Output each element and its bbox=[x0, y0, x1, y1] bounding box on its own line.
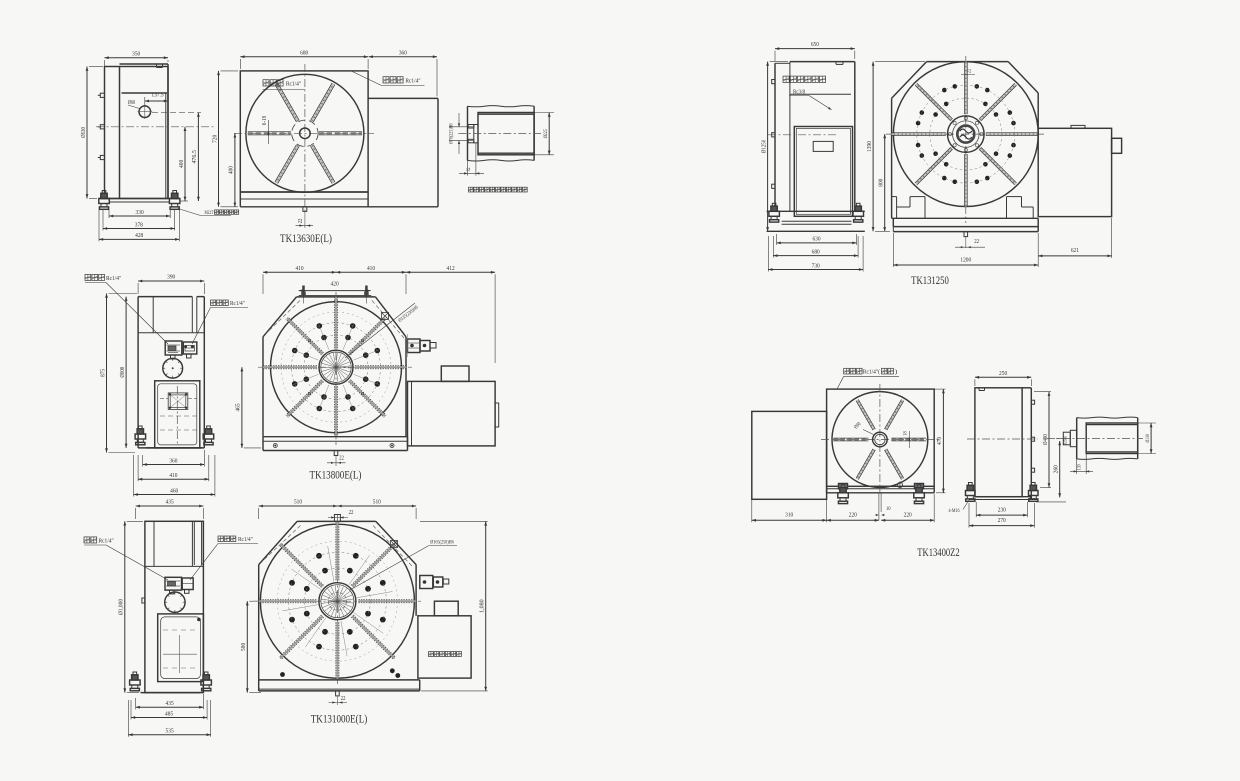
svg-text:680: 680 bbox=[300, 50, 309, 57]
svg-text:435: 435 bbox=[166, 499, 175, 506]
svg-text:Ø600: Ø600 bbox=[119, 366, 126, 377]
svg-text:Ø400: Ø400 bbox=[1042, 434, 1049, 445]
svg-text:18: 18 bbox=[903, 431, 909, 436]
svg-text:410: 410 bbox=[295, 265, 304, 272]
svg-text:460: 460 bbox=[170, 487, 179, 494]
svg-text:470: 470 bbox=[936, 436, 943, 445]
svg-text:M22T: M22T bbox=[205, 210, 214, 216]
svg-text:730: 730 bbox=[812, 262, 821, 269]
svg-text:Rc1/4″: Rc1/4″ bbox=[286, 81, 302, 88]
svg-text:6-18: 6-18 bbox=[262, 116, 268, 126]
svg-text:22: 22 bbox=[339, 455, 344, 461]
svg-text:510: 510 bbox=[373, 499, 382, 506]
svg-text:220: 220 bbox=[904, 512, 913, 519]
svg-text:): ) bbox=[895, 369, 898, 376]
svg-text:250: 250 bbox=[999, 370, 1008, 377]
svg-text:680: 680 bbox=[812, 248, 821, 255]
svg-text:Ø225: Ø225 bbox=[543, 129, 549, 138]
svg-text:270: 270 bbox=[998, 517, 1007, 524]
svg-text:137.5: 137.5 bbox=[151, 93, 163, 99]
svg-text:428: 428 bbox=[135, 232, 144, 239]
svg-text:310: 310 bbox=[785, 512, 794, 519]
svg-text:Ø1250: Ø1250 bbox=[760, 139, 767, 153]
svg-text:TK13400Z2: TK13400Z2 bbox=[917, 547, 960, 559]
svg-text:Ø130: Ø130 bbox=[1145, 434, 1151, 443]
svg-text:412: 412 bbox=[447, 265, 455, 272]
svg-text:360: 360 bbox=[399, 50, 408, 57]
svg-text:330: 330 bbox=[136, 209, 145, 216]
svg-text:485: 485 bbox=[165, 710, 174, 717]
svg-text:TK13630E(L): TK13630E(L) bbox=[280, 233, 332, 245]
svg-text:Ø70(225)H6: Ø70(225)H6 bbox=[450, 123, 455, 144]
svg-text:Rc1/4″: Rc1/4″ bbox=[99, 538, 115, 545]
svg-text:130: 130 bbox=[1077, 464, 1082, 470]
svg-text:800: 800 bbox=[878, 178, 885, 187]
svg-text:875: 875 bbox=[99, 368, 106, 377]
svg-text:Ø630: Ø630 bbox=[80, 127, 87, 138]
svg-text:220: 220 bbox=[849, 512, 858, 519]
svg-text:535: 535 bbox=[166, 728, 175, 735]
svg-text:360: 360 bbox=[169, 457, 178, 464]
svg-text:22: 22 bbox=[341, 696, 346, 702]
svg-text:410: 410 bbox=[169, 472, 178, 479]
svg-text:400: 400 bbox=[228, 165, 235, 174]
svg-text:410: 410 bbox=[367, 265, 376, 272]
svg-text:390: 390 bbox=[167, 274, 176, 281]
svg-text:1390: 1390 bbox=[866, 141, 873, 152]
svg-text:621: 621 bbox=[1071, 247, 1079, 254]
svg-text:Rc1/4″: Rc1/4″ bbox=[230, 301, 245, 307]
svg-text:Ø1,000: Ø1,000 bbox=[118, 598, 125, 615]
svg-text:1200: 1200 bbox=[960, 256, 971, 263]
svg-text:Rc1/4″(: Rc1/4″( bbox=[863, 369, 880, 376]
svg-text:Rc1/4″: Rc1/4″ bbox=[106, 275, 122, 282]
svg-text:4-M16: 4-M16 bbox=[948, 508, 959, 514]
svg-text:Ø60: Ø60 bbox=[128, 100, 135, 106]
svg-text:Rc3/8: Rc3/8 bbox=[793, 90, 805, 96]
svg-text:22: 22 bbox=[349, 510, 354, 516]
svg-text:10: 10 bbox=[886, 506, 891, 512]
svg-text:476.5: 476.5 bbox=[191, 149, 198, 163]
svg-text:32: 32 bbox=[467, 167, 472, 172]
svg-text:1,080: 1,080 bbox=[479, 599, 486, 613]
svg-text:420: 420 bbox=[331, 281, 340, 288]
svg-text:Rc1/4″: Rc1/4″ bbox=[405, 78, 421, 85]
svg-text:Ø165(250)H6: Ø165(250)H6 bbox=[430, 539, 454, 546]
svg-text:260: 260 bbox=[1053, 465, 1060, 474]
svg-text:435: 435 bbox=[166, 700, 175, 707]
svg-text:22: 22 bbox=[974, 239, 979, 245]
svg-text:510: 510 bbox=[294, 499, 303, 506]
svg-text:350: 350 bbox=[132, 51, 141, 58]
svg-text:230: 230 bbox=[998, 507, 1007, 514]
svg-text:580: 580 bbox=[240, 642, 247, 651]
svg-text:465: 465 bbox=[235, 403, 242, 412]
svg-text:650: 650 bbox=[811, 41, 820, 48]
svg-text:378: 378 bbox=[135, 221, 144, 228]
svg-text:TK131000E(L): TK131000E(L) bbox=[311, 714, 368, 726]
svg-text:TK13800E(L): TK13800E(L) bbox=[310, 470, 362, 482]
svg-text:630: 630 bbox=[812, 236, 821, 243]
svg-text:22: 22 bbox=[298, 219, 304, 224]
svg-text:Ø25H6: Ø25H6 bbox=[1063, 435, 1068, 445]
svg-text:TK131250: TK131250 bbox=[911, 275, 949, 287]
svg-text:22: 22 bbox=[967, 69, 973, 74]
svg-text:400: 400 bbox=[178, 159, 185, 168]
svg-text:Rc1/4″: Rc1/4″ bbox=[238, 537, 253, 543]
svg-text:720: 720 bbox=[211, 134, 218, 143]
